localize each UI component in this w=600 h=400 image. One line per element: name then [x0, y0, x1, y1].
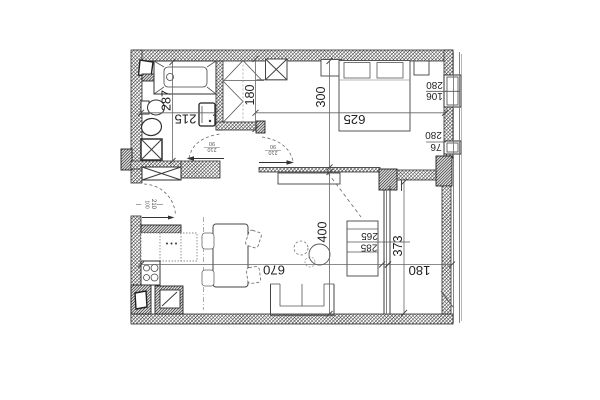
svg-text:280: 280	[426, 79, 443, 90]
svg-text:265: 265	[361, 230, 378, 241]
svg-text:625: 625	[343, 112, 365, 127]
svg-text:90: 90	[270, 143, 276, 149]
svg-text:210: 210	[268, 149, 277, 155]
svg-text:215: 215	[174, 111, 196, 126]
svg-text:180: 180	[408, 263, 430, 278]
svg-text:285: 285	[360, 241, 377, 252]
svg-text:373: 373	[391, 235, 405, 256]
svg-text:210: 210	[150, 199, 156, 210]
svg-text:100: 100	[144, 200, 150, 209]
svg-text:287: 287	[160, 90, 174, 111]
svg-text:300: 300	[314, 86, 328, 107]
svg-text:280: 280	[425, 129, 442, 140]
svg-text:400: 400	[316, 221, 330, 242]
svg-text:106: 106	[426, 90, 443, 101]
svg-text:180: 180	[243, 84, 257, 105]
svg-text:90: 90	[209, 140, 215, 146]
svg-text:670: 670	[263, 262, 285, 277]
svg-text:210: 210	[207, 146, 216, 152]
svg-text:76: 76	[430, 141, 442, 152]
